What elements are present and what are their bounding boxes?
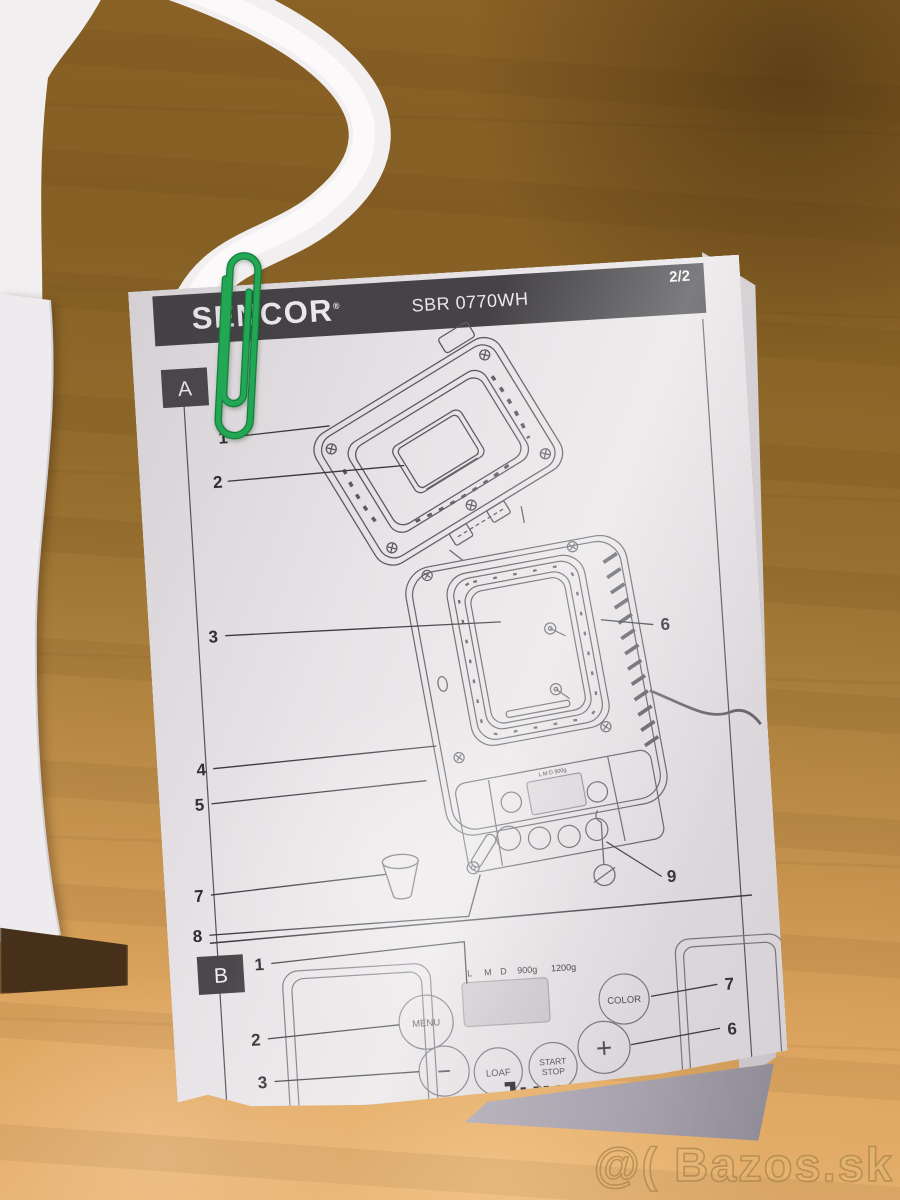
body-diagram: L M D 900g xyxy=(401,513,778,876)
section-a-callouts: 1 2 3 6 4 5 7 8 9 xyxy=(162,402,688,946)
svg-text:5: 5 xyxy=(194,795,205,815)
svg-text:7: 7 xyxy=(194,887,205,907)
section-divider-line xyxy=(209,895,753,943)
svg-text:9: 9 xyxy=(666,867,677,887)
panel-display xyxy=(462,978,551,1027)
svg-text:L: L xyxy=(467,968,473,978)
size-scale: L M D 900g 1200g xyxy=(467,962,576,979)
right-border-line xyxy=(703,319,753,1078)
paperclip xyxy=(198,234,290,460)
plus-button-label: + xyxy=(595,1032,613,1064)
svg-text:1: 1 xyxy=(254,955,265,975)
power-cord xyxy=(650,672,761,743)
svg-text:2: 2 xyxy=(212,473,223,493)
svg-text:4: 4 xyxy=(196,760,207,780)
svg-text:6: 6 xyxy=(727,1019,738,1039)
svg-text:3: 3 xyxy=(257,1073,268,1093)
side-hole xyxy=(437,676,449,692)
svg-text:1200g: 1200g xyxy=(551,962,577,974)
svg-text:2: 2 xyxy=(251,1030,262,1050)
svg-text:3: 3 xyxy=(208,627,219,647)
white-sheet-left xyxy=(0,280,90,960)
pan-slot xyxy=(506,700,570,718)
lid-diagram xyxy=(296,313,586,598)
svg-text:900g: 900g xyxy=(517,964,538,975)
svg-text:D: D xyxy=(500,966,508,976)
minus-button-label: − xyxy=(436,1058,452,1086)
machine-display xyxy=(526,773,586,816)
machine-control-panel: L M D 900g xyxy=(454,749,666,874)
menu-button-label: MENU xyxy=(412,1017,441,1030)
color-button-label: COLOR xyxy=(607,994,642,1007)
hook-icon xyxy=(590,809,617,886)
svg-text:6: 6 xyxy=(660,615,671,635)
section-b-label: B xyxy=(213,964,228,988)
lid-top-tab xyxy=(438,321,476,353)
svg-text:7: 7 xyxy=(724,974,735,994)
measuring-cup-icon xyxy=(382,853,421,900)
svg-text:8: 8 xyxy=(192,927,203,947)
svg-text:M: M xyxy=(484,967,492,977)
panel-left-wing xyxy=(282,963,439,1117)
kneading-paddle-marks xyxy=(538,621,577,702)
lid-vent-dashes-bottom xyxy=(416,463,513,525)
section-a-label: A xyxy=(177,377,192,401)
bazos-watermark: @( Bazos.sk xyxy=(594,1137,894,1192)
